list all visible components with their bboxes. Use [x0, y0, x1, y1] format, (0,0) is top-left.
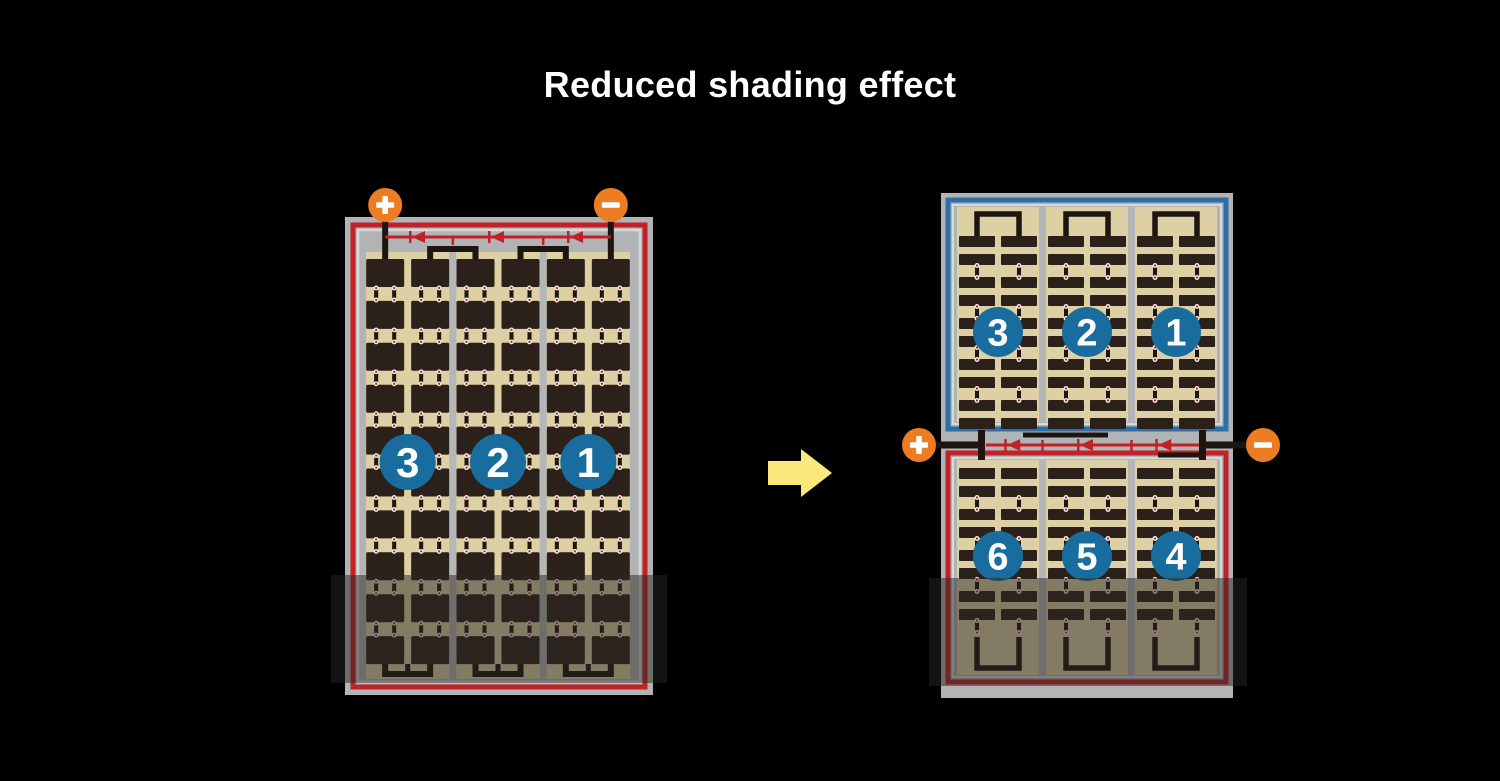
cell-connector	[618, 289, 622, 299]
solar-half-cell	[1048, 418, 1084, 429]
solder-dot	[374, 298, 378, 302]
cell-connector	[392, 540, 396, 550]
solder-dot	[419, 370, 423, 374]
solder-dot	[1017, 276, 1021, 280]
solder-dot	[419, 412, 423, 416]
solder-dot	[392, 286, 396, 290]
cell-connector	[1017, 349, 1021, 359]
string-number-label: 1	[1165, 312, 1186, 354]
cell-connector	[975, 499, 979, 509]
solar-cell	[547, 343, 585, 371]
bus-end-bar	[1199, 430, 1206, 460]
cell-connector	[528, 415, 532, 425]
solder-dot	[437, 412, 441, 416]
solder-dot	[465, 466, 469, 470]
solder-dot	[600, 550, 604, 554]
solar-cell	[547, 259, 585, 287]
cell-connector	[419, 331, 423, 341]
solder-dot	[465, 412, 469, 416]
solder-dot	[573, 508, 577, 512]
cell-connector	[573, 331, 577, 341]
solder-dot	[465, 496, 469, 500]
solder-dot	[437, 340, 441, 344]
cell-connector	[600, 540, 604, 550]
solder-dot	[510, 496, 514, 500]
solder-dot	[555, 424, 559, 428]
cell-column-separator	[1128, 207, 1135, 422]
cell-connector	[483, 540, 487, 550]
cell-connector	[1106, 308, 1110, 318]
cell-connector	[437, 373, 441, 383]
cell-connector	[573, 499, 577, 509]
solder-dot	[374, 424, 378, 428]
solder-dot	[465, 328, 469, 332]
solar-half-cell	[1179, 418, 1215, 429]
cell-connector	[483, 373, 487, 383]
solder-dot	[618, 382, 622, 386]
solder-dot	[1064, 496, 1068, 500]
solder-dot	[392, 340, 396, 344]
solder-dot	[392, 424, 396, 428]
cell-connector	[483, 415, 487, 425]
solder-dot	[1017, 537, 1021, 541]
solder-dot	[1064, 399, 1068, 403]
solder-dot	[618, 370, 622, 374]
cell-connector	[1153, 308, 1157, 318]
cell-connector	[555, 415, 559, 425]
solder-dot	[600, 370, 604, 374]
solder-dot	[419, 382, 423, 386]
solder-dot	[573, 550, 577, 554]
cell-connector	[510, 415, 514, 425]
shading-overlay	[929, 578, 1247, 686]
solder-dot	[573, 328, 577, 332]
cell-connector	[618, 415, 622, 425]
solder-dot	[419, 550, 423, 554]
solder-dot	[1153, 387, 1157, 391]
cell-connector	[419, 373, 423, 383]
diagram-canvas: 321321654	[0, 0, 1500, 781]
cell-connector	[600, 289, 604, 299]
solder-dot	[600, 496, 604, 500]
solder-dot	[600, 286, 604, 290]
solar-cell	[502, 301, 540, 329]
cell-connector	[465, 331, 469, 341]
solder-dot	[528, 286, 532, 290]
solder-dot	[528, 412, 532, 416]
diode-bar	[488, 231, 491, 243]
solder-dot	[465, 382, 469, 386]
cell-connector	[374, 457, 378, 467]
solder-dot	[618, 508, 622, 512]
string-number-label: 2	[486, 439, 509, 486]
solder-dot	[465, 370, 469, 374]
solder-dot	[975, 264, 979, 268]
solar-cell	[502, 259, 540, 287]
solder-dot	[1153, 358, 1157, 362]
cell-connector	[1064, 308, 1068, 318]
solder-dot	[618, 496, 622, 500]
solder-dot	[374, 382, 378, 386]
solar-cell	[592, 385, 630, 413]
solder-dot	[1064, 276, 1068, 280]
cell-connector	[1064, 267, 1068, 277]
cell-connector	[1064, 349, 1068, 359]
solder-dot	[1153, 276, 1157, 280]
cell-connector	[374, 373, 378, 383]
solder-dot	[510, 382, 514, 386]
solar-cell	[547, 510, 585, 538]
solder-dot	[975, 305, 979, 309]
cell-connector	[510, 373, 514, 383]
cell-connector	[392, 499, 396, 509]
cell-connector	[437, 331, 441, 341]
solar-cell	[366, 385, 404, 413]
cell-connector	[1064, 390, 1068, 400]
solder-dot	[510, 412, 514, 416]
cell-connector	[1106, 390, 1110, 400]
solder-dot	[555, 496, 559, 500]
solder-dot	[528, 496, 532, 500]
solder-dot	[1064, 264, 1068, 268]
solder-dot	[1195, 276, 1199, 280]
diode-bar	[409, 231, 412, 243]
solder-dot	[1064, 358, 1068, 362]
cell-connector	[528, 457, 532, 467]
solder-dot	[437, 370, 441, 374]
solder-dot	[437, 382, 441, 386]
cell-connector	[555, 457, 559, 467]
solder-dot	[419, 538, 423, 542]
solder-dot	[510, 424, 514, 428]
solar-cell	[592, 510, 630, 538]
solder-dot	[437, 550, 441, 554]
solder-dot	[374, 550, 378, 554]
solar-half-cell	[1090, 236, 1126, 247]
solder-dot	[510, 370, 514, 374]
solar-cell	[592, 259, 630, 287]
solder-dot	[555, 328, 559, 332]
solder-dot	[419, 496, 423, 500]
solder-dot	[618, 466, 622, 470]
solder-dot	[392, 328, 396, 332]
cell-connector	[1106, 499, 1110, 509]
solar-half-cell	[1179, 236, 1215, 247]
solar-half-cell	[1001, 468, 1037, 479]
string-number-label: 6	[987, 536, 1008, 578]
solder-dot	[528, 340, 532, 344]
infographic-stage: Reduced shading effect 321321654	[0, 0, 1500, 781]
solder-dot	[618, 412, 622, 416]
solar-cell	[457, 510, 495, 538]
solar-cell	[411, 510, 449, 538]
solder-dot	[1106, 264, 1110, 268]
solder-dot	[1106, 399, 1110, 403]
solder-dot	[437, 298, 441, 302]
bus-end-bar	[978, 430, 985, 460]
cell-connector	[510, 331, 514, 341]
solder-dot	[437, 466, 441, 470]
solder-dot	[483, 424, 487, 428]
cell-connector	[618, 540, 622, 550]
cell-connector	[555, 499, 559, 509]
solder-dot	[419, 328, 423, 332]
solder-dot	[483, 496, 487, 500]
solder-dot	[465, 454, 469, 458]
solder-dot	[1017, 358, 1021, 362]
cell-connector	[510, 540, 514, 550]
cell-connector	[1153, 267, 1157, 277]
cell-connector	[618, 331, 622, 341]
solder-dot	[1017, 264, 1021, 268]
solder-dot	[483, 370, 487, 374]
solder-dot	[1064, 508, 1068, 512]
solder-dot	[1106, 358, 1110, 362]
solder-dot	[437, 286, 441, 290]
solder-dot	[573, 496, 577, 500]
cell-connector	[419, 499, 423, 509]
solar-cell	[457, 301, 495, 329]
solder-dot	[1106, 496, 1110, 500]
solder-dot	[1017, 305, 1021, 309]
solder-dot	[975, 276, 979, 280]
solar-half-cell	[1048, 468, 1084, 479]
cell-connector	[465, 415, 469, 425]
solder-dot	[437, 328, 441, 332]
solder-dot	[465, 298, 469, 302]
cell-connector	[437, 289, 441, 299]
solder-dot	[975, 358, 979, 362]
solder-dot	[555, 298, 559, 302]
solder-dot	[528, 550, 532, 554]
cell-connector	[528, 540, 532, 550]
solder-dot	[483, 298, 487, 302]
cell-connector	[374, 540, 378, 550]
solder-dot	[419, 424, 423, 428]
solder-dot	[392, 496, 396, 500]
solder-dot	[465, 286, 469, 290]
solder-dot	[483, 508, 487, 512]
solder-dot	[510, 340, 514, 344]
solder-dot	[1017, 496, 1021, 500]
cell-connector	[555, 540, 559, 550]
solder-dot	[1195, 358, 1199, 362]
solder-dot	[419, 286, 423, 290]
solar-cell	[547, 301, 585, 329]
solar-half-cell	[1090, 468, 1126, 479]
cell-connector	[618, 499, 622, 509]
solder-dot	[483, 382, 487, 386]
cell-connector	[1153, 499, 1157, 509]
solder-dot	[374, 328, 378, 332]
solar-cell	[592, 343, 630, 371]
cell-connector	[465, 457, 469, 467]
cell-connector	[528, 499, 532, 509]
solder-dot	[528, 538, 532, 542]
cell-connector	[419, 415, 423, 425]
cell-connector	[975, 390, 979, 400]
solder-dot	[618, 340, 622, 344]
shading-overlay	[331, 575, 667, 683]
solder-dot	[528, 298, 532, 302]
terminal-positive-icon	[382, 196, 388, 214]
solar-half-cell	[1179, 468, 1215, 479]
cell-connector	[374, 331, 378, 341]
solder-dot	[1153, 508, 1157, 512]
solder-dot	[573, 412, 577, 416]
solder-dot	[975, 399, 979, 403]
solder-dot	[555, 466, 559, 470]
terminal-positive-icon	[916, 436, 922, 454]
solder-dot	[975, 496, 979, 500]
solder-dot	[510, 550, 514, 554]
cell-connector	[1106, 349, 1110, 359]
solder-dot	[510, 328, 514, 332]
solar-half-cell	[1137, 418, 1173, 429]
solar-cell	[502, 510, 540, 538]
string-number-label: 3	[987, 312, 1008, 354]
cell-connector	[1195, 499, 1199, 509]
string-number-label: 3	[396, 439, 419, 486]
solder-dot	[1195, 508, 1199, 512]
cell-connector	[573, 373, 577, 383]
cell-connector	[510, 499, 514, 509]
solder-dot	[600, 298, 604, 302]
string-number-label: 4	[1165, 536, 1186, 578]
cell-connector	[555, 331, 559, 341]
solder-dot	[528, 328, 532, 332]
cell-connector	[419, 540, 423, 550]
solder-dot	[1064, 537, 1068, 541]
cell-connector	[483, 289, 487, 299]
solder-dot	[510, 538, 514, 542]
cell-connector	[528, 331, 532, 341]
cell-connector	[618, 457, 622, 467]
solder-dot	[1106, 508, 1110, 512]
string-number-label: 5	[1076, 536, 1097, 578]
solar-half-cell	[1048, 236, 1084, 247]
solder-dot	[483, 550, 487, 554]
solder-dot	[528, 424, 532, 428]
solder-dot	[1153, 399, 1157, 403]
solar-cell	[457, 343, 495, 371]
cell-connector	[975, 267, 979, 277]
solder-dot	[528, 454, 532, 458]
solder-dot	[419, 508, 423, 512]
solder-dot	[374, 538, 378, 542]
solder-dot	[392, 538, 396, 542]
solder-dot	[573, 370, 577, 374]
solder-dot	[618, 424, 622, 428]
cell-connector	[374, 415, 378, 425]
cell-connector	[437, 457, 441, 467]
solder-dot	[465, 508, 469, 512]
solder-dot	[528, 466, 532, 470]
cell-connector	[573, 540, 577, 550]
solder-dot	[555, 382, 559, 386]
cell-connector	[1017, 499, 1021, 509]
solder-dot	[1064, 305, 1068, 309]
cell-connector	[483, 499, 487, 509]
string-number-label: 2	[1076, 312, 1097, 354]
solder-dot	[1017, 399, 1021, 403]
solder-dot	[573, 382, 577, 386]
solder-dot	[555, 286, 559, 290]
solar-half-cell	[959, 236, 995, 247]
cell-connector	[1153, 349, 1157, 359]
cell-connector	[975, 308, 979, 318]
cell-connector	[573, 415, 577, 425]
solder-dot	[510, 298, 514, 302]
diode-bar	[1155, 439, 1158, 451]
solder-dot	[975, 537, 979, 541]
solder-dot	[528, 508, 532, 512]
solder-dot	[573, 298, 577, 302]
cell-connector	[1017, 267, 1021, 277]
solder-dot	[465, 424, 469, 428]
solder-dot	[555, 340, 559, 344]
solder-dot	[437, 424, 441, 428]
solar-cell	[547, 385, 585, 413]
solder-dot	[1195, 264, 1199, 268]
solar-half-cell	[1137, 468, 1173, 479]
solder-dot	[1106, 276, 1110, 280]
cell-connector	[528, 289, 532, 299]
solder-dot	[528, 382, 532, 386]
diode-bar	[567, 231, 570, 243]
solder-dot	[600, 508, 604, 512]
solder-dot	[555, 538, 559, 542]
solder-dot	[600, 412, 604, 416]
solder-dot	[374, 286, 378, 290]
solar-cell	[366, 343, 404, 371]
solder-dot	[618, 328, 622, 332]
cell-connector	[483, 331, 487, 341]
solar-half-cell	[959, 468, 995, 479]
cell-connector	[975, 349, 979, 359]
solder-dot	[618, 298, 622, 302]
diode-bar	[1077, 439, 1080, 451]
solder-dot	[555, 454, 559, 458]
solar-half-cell	[1137, 236, 1173, 247]
solar-cell	[366, 259, 404, 287]
solder-dot	[374, 496, 378, 500]
solar-cell	[457, 385, 495, 413]
transition-arrow-icon	[768, 449, 832, 497]
cell-connector	[618, 373, 622, 383]
cell-connector	[437, 415, 441, 425]
cell-connector	[1153, 390, 1157, 400]
solder-dot	[1195, 387, 1199, 391]
solder-dot	[1153, 537, 1157, 541]
cell-connector	[465, 540, 469, 550]
cell-connector	[600, 331, 604, 341]
solder-dot	[555, 550, 559, 554]
cell-connector	[465, 373, 469, 383]
solder-dot	[573, 538, 577, 542]
solder-dot	[465, 550, 469, 554]
solder-dot	[600, 328, 604, 332]
solar-cell	[592, 301, 630, 329]
solder-dot	[555, 508, 559, 512]
solar-half-cell	[1001, 236, 1037, 247]
solder-dot	[975, 387, 979, 391]
string-number-label: 1	[577, 439, 600, 486]
solar-cell	[502, 385, 540, 413]
solder-dot	[392, 412, 396, 416]
solar-half-cell	[1001, 418, 1037, 429]
solder-dot	[528, 370, 532, 374]
